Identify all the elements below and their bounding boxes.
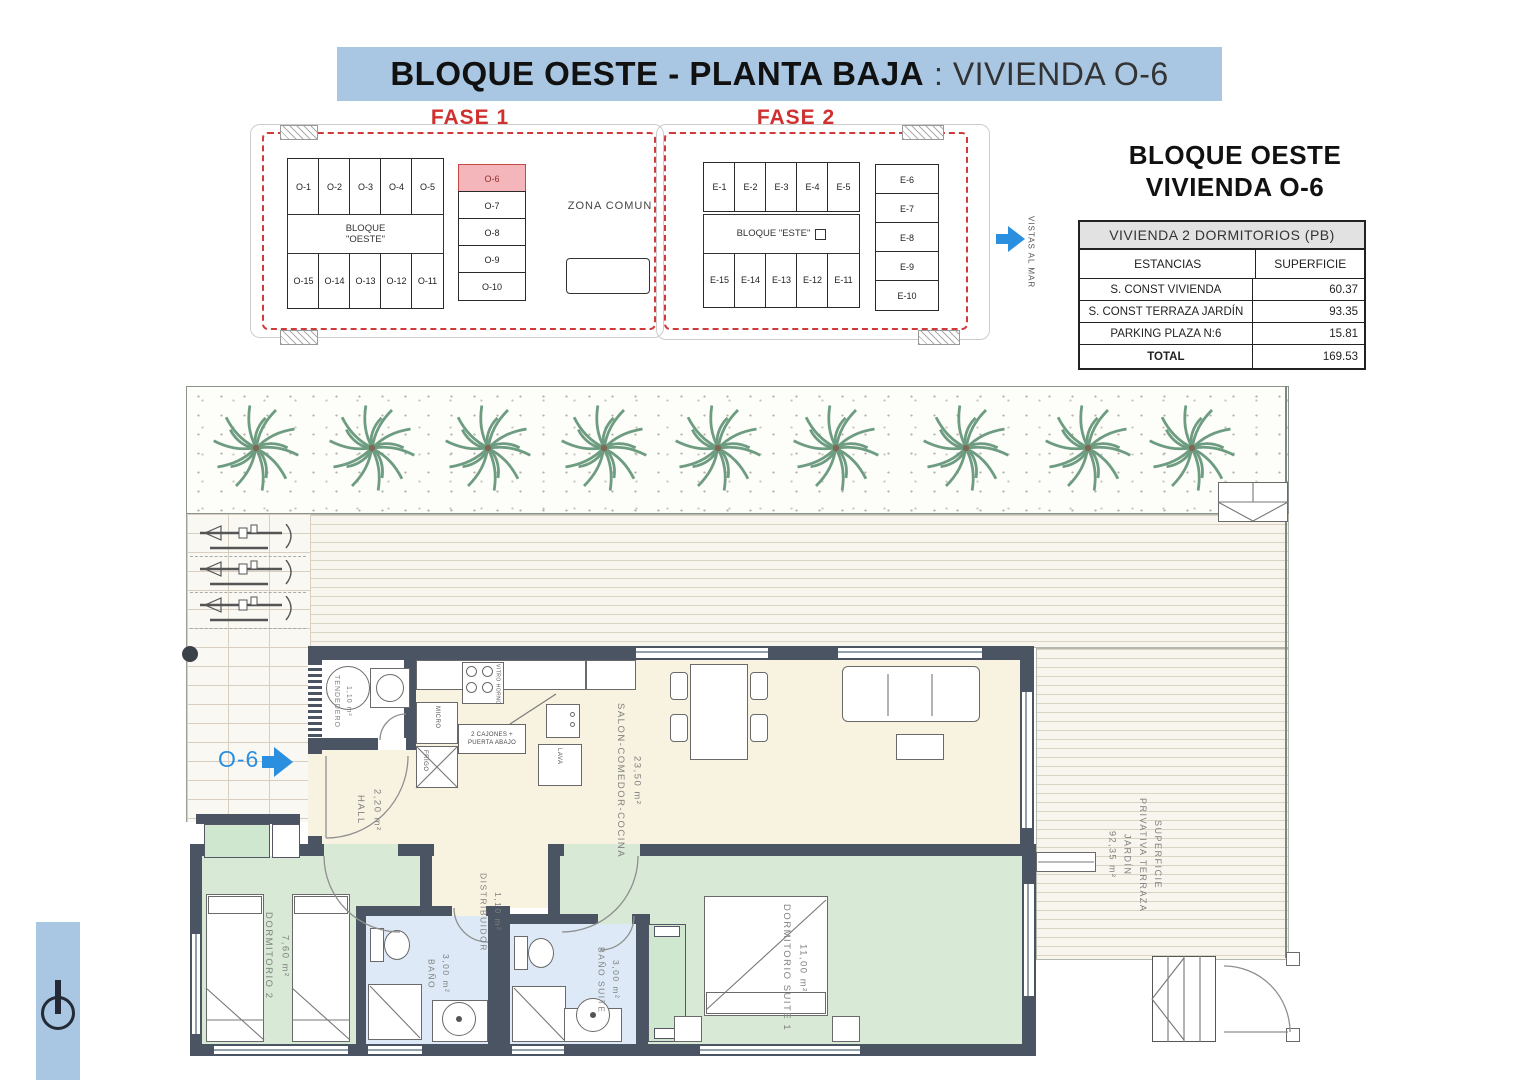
bloque-oeste-label-2: "OESTE" xyxy=(346,234,385,245)
pergola-structure xyxy=(1218,482,1288,522)
bike-stall-divider xyxy=(190,592,306,593)
pillow xyxy=(294,896,348,914)
unit-E-10: E-10 xyxy=(875,280,939,311)
window xyxy=(512,1046,564,1054)
wall xyxy=(356,906,366,1056)
title-banner: BLOQUE OESTE - PLANTA BAJA : VIVIENDA O-… xyxy=(337,47,1222,101)
table-row: PARKING PLAZA N:6 15.81 xyxy=(1080,323,1364,345)
lava-label: LAVA xyxy=(554,748,562,784)
door-opening-entrance xyxy=(308,754,322,836)
survey-hatch xyxy=(902,125,944,140)
bloque-oeste-corridor: BLOQUE "OESTE" xyxy=(287,214,444,254)
unit-E-13: E-13 xyxy=(765,252,798,308)
common-pool-shape xyxy=(566,258,650,294)
unit-O-7: O-7 xyxy=(458,191,526,220)
unit-O-5: O-5 xyxy=(411,158,444,216)
door-opening-tendedero xyxy=(378,738,406,750)
terrace-deck-top xyxy=(310,514,1289,648)
opening-dormitorio2 xyxy=(324,844,398,858)
wall xyxy=(296,844,324,856)
window xyxy=(368,1046,422,1054)
unit-E-12: E-12 xyxy=(796,252,829,308)
burner-icon xyxy=(482,682,493,693)
pillow xyxy=(208,896,262,914)
burner-icon xyxy=(466,682,477,693)
wardrobe-handle xyxy=(654,926,680,937)
opening-distribuidor xyxy=(432,844,548,858)
col-superficie: SUPERFICIE xyxy=(1256,250,1364,278)
unit-O-8: O-8 xyxy=(458,218,526,247)
bicycle-icon xyxy=(194,560,302,590)
bike-stall-divider xyxy=(190,556,306,557)
palm-tree-icon xyxy=(208,400,304,496)
chair-icon xyxy=(750,672,768,700)
faucet-dot xyxy=(570,722,575,727)
page-title-rest: : VIVIENDA O-6 xyxy=(934,56,1169,93)
floorplan-sheet: BLOQUE OESTE - PLANTA BAJA : VIVIENDA O-… xyxy=(0,0,1528,1080)
micro-label: MICRO xyxy=(432,706,440,742)
unit-E-14: E-14 xyxy=(734,252,767,308)
bike-stall-divider xyxy=(190,628,306,629)
unit-O-14: O-14 xyxy=(318,252,351,309)
distribuidor-label: DISTRIBUIDOR 1,10 m² xyxy=(476,862,505,962)
survey-hatch xyxy=(918,330,960,345)
chair-icon xyxy=(670,672,688,700)
window xyxy=(700,1046,860,1054)
bicycle-icon xyxy=(194,524,302,554)
fase1-label: FASE 1 xyxy=(380,106,560,130)
exterior-step xyxy=(1036,852,1096,872)
unit-O-13: O-13 xyxy=(349,252,382,309)
hall-label: HALL 2,20 m² xyxy=(352,780,384,840)
unit-E-8: E-8 xyxy=(875,222,939,253)
sea-view-arrow-icon xyxy=(1008,226,1025,252)
palm-tree-icon xyxy=(440,400,536,496)
col-estancias: ESTANCIAS xyxy=(1080,250,1256,278)
toilet-tank xyxy=(514,936,528,970)
unit-E-5: E-5 xyxy=(827,162,860,212)
page-title-bold: BLOQUE OESTE - PLANTA BAJA xyxy=(390,55,924,93)
surface-table: VIVIENDA 2 DORMITORIOS (PB) ESTANCIAS SU… xyxy=(1078,220,1366,370)
window xyxy=(1024,884,1034,996)
unit-O-10: O-10 xyxy=(458,272,526,301)
shower-tray xyxy=(368,984,422,1040)
unit-O-3: O-3 xyxy=(349,158,382,216)
plot-right-edge xyxy=(1285,386,1287,958)
wall xyxy=(548,844,560,916)
dormitorio-suite-label: DORMITORIO SUITE 1 11,00 m² xyxy=(778,898,810,1038)
north-needle-icon xyxy=(55,980,61,1014)
wall xyxy=(636,914,648,1056)
bicycle-icon xyxy=(194,596,302,626)
salon-label: SALON-COMEDOR-COCINA 23,50 m² xyxy=(612,676,644,886)
unit-O-6-highlighted: O-6 xyxy=(458,164,526,193)
terrace-label: SUPERFICIE PRIVATIVA TERRAZA JARDÍN 92,3… xyxy=(1104,760,1165,950)
burner-icon xyxy=(482,666,493,677)
shelf-box xyxy=(272,824,300,858)
unit-O-12: O-12 xyxy=(380,252,413,309)
palm-tree-icon xyxy=(1040,400,1136,496)
unit-O-4: O-4 xyxy=(380,158,413,216)
unit-O-9: O-9 xyxy=(458,245,526,274)
drain-dot xyxy=(456,1016,462,1022)
entry-arrow-icon xyxy=(274,747,293,777)
unit-E-4: E-4 xyxy=(796,162,829,212)
chair-icon xyxy=(670,714,688,742)
door-jamb xyxy=(1286,1028,1300,1042)
zona-comun-label: ZONA COMUN xyxy=(560,200,660,212)
info-title-line1: BLOQUE OESTE xyxy=(1090,140,1380,171)
single-bed xyxy=(292,894,350,1042)
chair-icon xyxy=(750,714,768,742)
survey-hatch xyxy=(280,330,318,345)
kitchen-sink-icon xyxy=(546,704,580,738)
survey-hatch xyxy=(280,125,318,140)
unit-E-7: E-7 xyxy=(875,193,939,224)
wall xyxy=(640,844,1034,856)
sea-view-arrow-tail xyxy=(996,234,1008,244)
tree-trunk-marker xyxy=(182,646,198,662)
table-row: S. CONST TERRAZA JARDÍN 93.35 xyxy=(1080,301,1364,323)
single-bed xyxy=(206,894,264,1042)
unit-O-2: O-2 xyxy=(318,158,351,216)
fase2-label: FASE 2 xyxy=(706,106,886,130)
window xyxy=(636,648,768,658)
palm-tree-icon xyxy=(324,400,420,496)
vistas-al-mar-label: VISTAS AL MAR xyxy=(1024,192,1038,312)
louver-vent-wall xyxy=(308,662,322,738)
wall xyxy=(196,814,300,824)
door-opening-bano-suite xyxy=(598,914,632,924)
toilet-tank xyxy=(370,928,384,962)
bloque-este-label: BLOQUE "ESTE" xyxy=(737,228,811,239)
toilet-icon xyxy=(528,938,554,968)
window xyxy=(192,934,200,1034)
toilet-icon xyxy=(384,930,410,960)
cajones-note: 2 CAJONES + PUERTA ABAJO xyxy=(458,724,526,754)
closet xyxy=(204,824,270,858)
coffee-table xyxy=(896,734,944,760)
unit-O-1: O-1 xyxy=(287,158,320,216)
dormitorio2-label: DORMITORIO 2 7,60 m² xyxy=(260,896,292,1016)
bloque-este-corridor: BLOQUE "ESTE" xyxy=(703,214,860,254)
unit-E-6: E-6 xyxy=(875,164,939,195)
table-row-total: TOTAL 169.53 xyxy=(1080,345,1364,368)
burner-icon xyxy=(466,666,477,677)
exterior-stairs xyxy=(1152,956,1216,1042)
unit-E-15: E-15 xyxy=(703,252,736,308)
elevator-icon xyxy=(815,229,826,240)
table-row: S. CONST VIVIENDA 60.37 xyxy=(1080,279,1364,301)
dryer-drum-icon xyxy=(376,674,404,702)
window xyxy=(838,648,982,658)
palm-tree-icon xyxy=(788,400,884,496)
window xyxy=(214,1046,348,1054)
entry-unit-label: O-6 xyxy=(218,746,259,773)
nightstand xyxy=(674,1016,702,1042)
door-jamb xyxy=(1286,952,1300,966)
unit-O-11: O-11 xyxy=(411,252,444,309)
sofa-icon xyxy=(842,666,980,722)
unit-E-2: E-2 xyxy=(734,162,767,212)
palm-tree-icon xyxy=(670,400,766,496)
vitro-horno-label: VITRO HORNO xyxy=(494,664,501,702)
bloque-oeste-label-1: BLOQUE xyxy=(346,223,386,234)
nightstand xyxy=(832,1016,860,1042)
unit-E-11: E-11 xyxy=(827,252,860,308)
info-title-line2: VIVIENDA O-6 xyxy=(1090,172,1380,203)
unit-E-1: E-1 xyxy=(703,162,736,212)
window-sliding-door xyxy=(1022,692,1032,828)
faucet-dot xyxy=(570,712,575,717)
palm-tree-icon xyxy=(556,400,652,496)
unit-E-3: E-3 xyxy=(765,162,798,212)
palm-tree-icon xyxy=(918,400,1014,496)
bano-suite-label: BAÑO SUITE 3,00 m² xyxy=(594,930,623,1030)
dining-table xyxy=(690,664,748,760)
tendedero-label: TENDEDERO 1,10 m² xyxy=(330,664,354,738)
shower-tray xyxy=(512,986,566,1042)
table-column-row: ESTANCIAS SUPERFICIE xyxy=(1080,250,1364,279)
unit-E-9: E-9 xyxy=(875,251,939,282)
unit-O-15: O-15 xyxy=(287,252,320,309)
table-header: VIVIENDA 2 DORMITORIOS (PB) xyxy=(1080,222,1364,250)
bano-label: BAÑO 3,00 m² xyxy=(424,934,453,1014)
entry-arrow-tail xyxy=(262,756,274,768)
frigo-label: FRIGO xyxy=(420,750,428,786)
wall xyxy=(420,844,432,916)
